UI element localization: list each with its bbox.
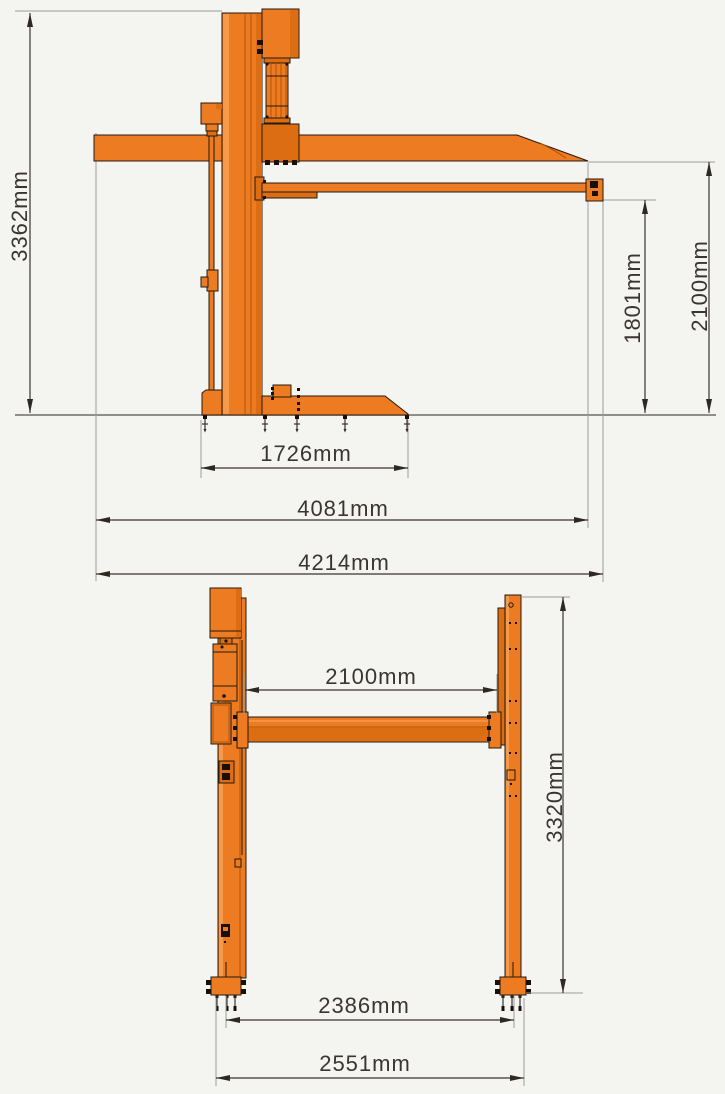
base-plate-tab (206, 980, 211, 985)
anchor-bolt (294, 415, 300, 433)
anchor-bolt (342, 415, 348, 433)
motor-box-shadow (290, 10, 298, 57)
column-shadow (256, 14, 262, 414)
post-clip (235, 859, 241, 867)
dim-overall-length: 4214mm (96, 550, 603, 577)
base-foot-left (202, 390, 222, 415)
technical-drawing-canvas: 3362mm 1801mm 2100mm 1726mm 4081mm 4214m… (0, 0, 725, 1094)
side-attachment-notch (216, 104, 222, 109)
beam-bolt (233, 726, 237, 730)
latch-detail (222, 764, 230, 770)
anchor-bolt (262, 415, 268, 433)
base-plate-tab (241, 989, 246, 994)
cross-beam-shadow (248, 728, 496, 741)
post-dot (509, 722, 511, 724)
base-plate-tab (495, 989, 500, 994)
rod-block-tab (201, 277, 208, 287)
anchor-bolt (202, 415, 208, 433)
front-cylinder (213, 644, 237, 701)
post-dot (515, 648, 517, 650)
dim-roof-underside-height: 2100mm (687, 162, 712, 413)
base-bolt (297, 388, 300, 391)
dim-inner-width: 2100mm (245, 664, 497, 693)
base-bolt (297, 395, 300, 398)
attachment-collar (207, 131, 217, 136)
front-motor-box-shadow (236, 589, 241, 637)
cylinder-bolt (265, 62, 268, 65)
arm-bolt (263, 196, 266, 199)
dim-label-base-length: 1726mm (260, 441, 352, 466)
dim-label-body-length: 4081mm (297, 496, 389, 521)
beam-bolt (487, 726, 491, 730)
dim-base-length: 1726mm (201, 441, 408, 471)
motor-bracket-bolt (257, 40, 263, 45)
post-dot (515, 795, 517, 797)
motor-bracket-bolt (257, 49, 263, 54)
dim-label-overall-width: 2551mm (319, 1051, 411, 1076)
mount-bolt (283, 160, 288, 165)
lock-dot (224, 941, 226, 943)
base-bolt (297, 408, 300, 411)
arm-end-latch (590, 181, 598, 188)
base-bracket (273, 385, 291, 397)
dim-column-height: 3320mm (542, 597, 567, 993)
latch-detail (222, 773, 230, 780)
rod-block (207, 270, 218, 291)
anchor-bolt (502, 995, 505, 1011)
arm-bolt (263, 180, 266, 183)
cylinder-bolt (285, 62, 288, 65)
dim-arm-underside-height: 1801mm (620, 200, 648, 413)
cylinder-dot (221, 646, 224, 649)
drawing-svg: 3362mm 1801mm 2100mm 1726mm 4081mm 4214m… (0, 0, 725, 1094)
side-view: 3362mm 1801mm 2100mm 1726mm 4081mm 4214m… (7, 9, 716, 582)
anchor-bolts-side-view (202, 415, 410, 433)
mount-bolt (292, 160, 297, 165)
lift-arm (262, 183, 588, 192)
base-bolt (271, 392, 274, 395)
right-base-plate (500, 977, 526, 995)
base-plate-tab (526, 980, 531, 985)
left-base-plate (211, 977, 241, 995)
anchor-bolt (234, 995, 237, 1011)
anchor-bolt (404, 415, 410, 433)
base-foot-right (262, 396, 408, 415)
column-highlight (223, 14, 229, 414)
cylinder-dot (222, 694, 226, 698)
dim-label-anchor-span: 2386mm (318, 993, 410, 1018)
beam-end-plate-left (237, 712, 248, 748)
base-plate-tab (241, 980, 246, 985)
beam-bolt (487, 737, 491, 741)
roof-mounting-block (262, 124, 299, 162)
post-dot (509, 795, 511, 797)
attachment-neck (206, 124, 218, 131)
base-bolt (271, 397, 274, 400)
roof-platform (94, 135, 588, 161)
lift-front-view-machine (206, 588, 531, 1011)
lift-side-view-machine (94, 9, 603, 433)
dim-total-height: 3362mm (7, 13, 33, 413)
front-view: 2100mm 3320mm 2386mm 2551mm (206, 588, 583, 1086)
post-dot (509, 752, 511, 754)
hydraulic-cylinder (266, 63, 288, 118)
mount-bolt (274, 160, 279, 165)
base-bolt (297, 402, 300, 405)
beam-bolt (487, 715, 491, 719)
post-dot (509, 648, 511, 650)
guide-rod-upper (209, 136, 214, 270)
dim-label-roof-underside-height: 2100mm (687, 240, 712, 332)
base-plate-tab (495, 980, 500, 985)
beam-bolt (233, 737, 237, 741)
dim-label-column-height: 3320mm (542, 751, 567, 843)
arm-end-latch (592, 191, 598, 196)
lift-arm-underplate (262, 192, 317, 198)
mount-bolt (265, 160, 270, 165)
dim-anchor-span: 2386mm (226, 993, 514, 1023)
base-plate-tab (206, 989, 211, 994)
hinge-pin (224, 639, 227, 642)
dim-label-arm-underside-height: 1801mm (620, 252, 645, 344)
dim-label-inner-width: 2100mm (325, 664, 417, 689)
post-dot (515, 752, 517, 754)
cylinder-top-cap (264, 58, 290, 63)
cylinder-bottom-cap (264, 118, 290, 123)
post-dot (510, 783, 512, 785)
right-post-highlight (506, 596, 509, 977)
dim-label-overall-length: 4214mm (298, 550, 390, 575)
dim-body-length: 4081mm (96, 496, 588, 523)
anchor-bolt (519, 995, 522, 1011)
guide-rod-lower (209, 291, 214, 391)
post-dot (509, 622, 511, 624)
post-dot (515, 700, 517, 702)
cylinder-bolt (265, 115, 268, 118)
lock-detail-window (223, 927, 228, 931)
beam-bolt (233, 715, 237, 719)
cylinder-bolt (285, 115, 288, 118)
base-bolt (271, 387, 274, 390)
post-dot (515, 722, 517, 724)
dim-label-total-height: 3362mm (7, 170, 32, 262)
control-box (211, 703, 231, 744)
post-dot (509, 700, 511, 702)
dim-overall-width: 2551mm (216, 1051, 524, 1081)
post-dot (515, 622, 517, 624)
anchor-bolt (511, 995, 514, 1011)
